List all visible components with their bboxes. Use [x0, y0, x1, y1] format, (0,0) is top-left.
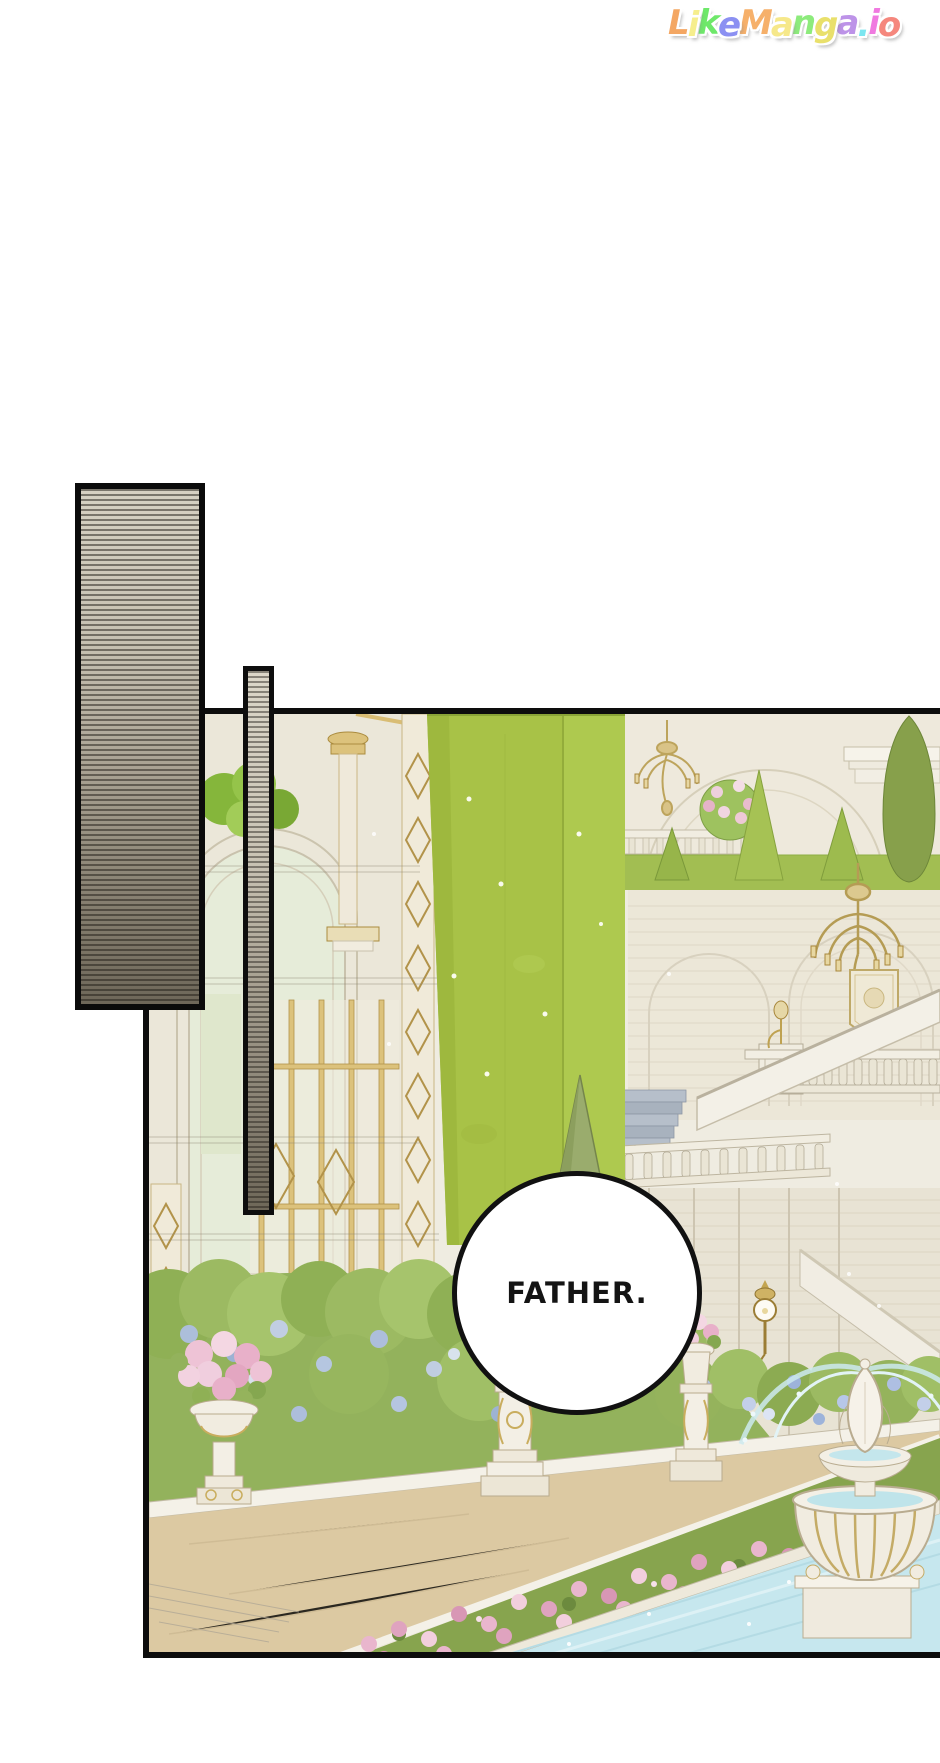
logo-letter: e: [718, 3, 741, 47]
logo-letter: g: [814, 3, 838, 47]
logo-letter: o: [878, 3, 901, 47]
logo-letter: L: [668, 1, 690, 45]
screentone-box: [75, 483, 205, 1010]
logo-letter: M: [739, 1, 773, 45]
page-background: LikeManga.io: [0, 0, 940, 1763]
logo-letter: .: [857, 3, 870, 47]
site-logo[interactable]: LikeManga.io: [668, 1, 899, 45]
hedge-wall: [427, 714, 625, 1245]
logo-letter: n: [792, 1, 816, 45]
screentone-bar: [243, 666, 274, 1215]
logo-letter: i: [688, 3, 700, 47]
speech-bubble-text: FATHER.: [506, 1276, 647, 1310]
logo-letter: k: [697, 1, 720, 45]
logo-letter: a: [836, 1, 859, 45]
logo-letter: a: [771, 3, 794, 47]
speech-bubble: FATHER.: [452, 1171, 702, 1415]
